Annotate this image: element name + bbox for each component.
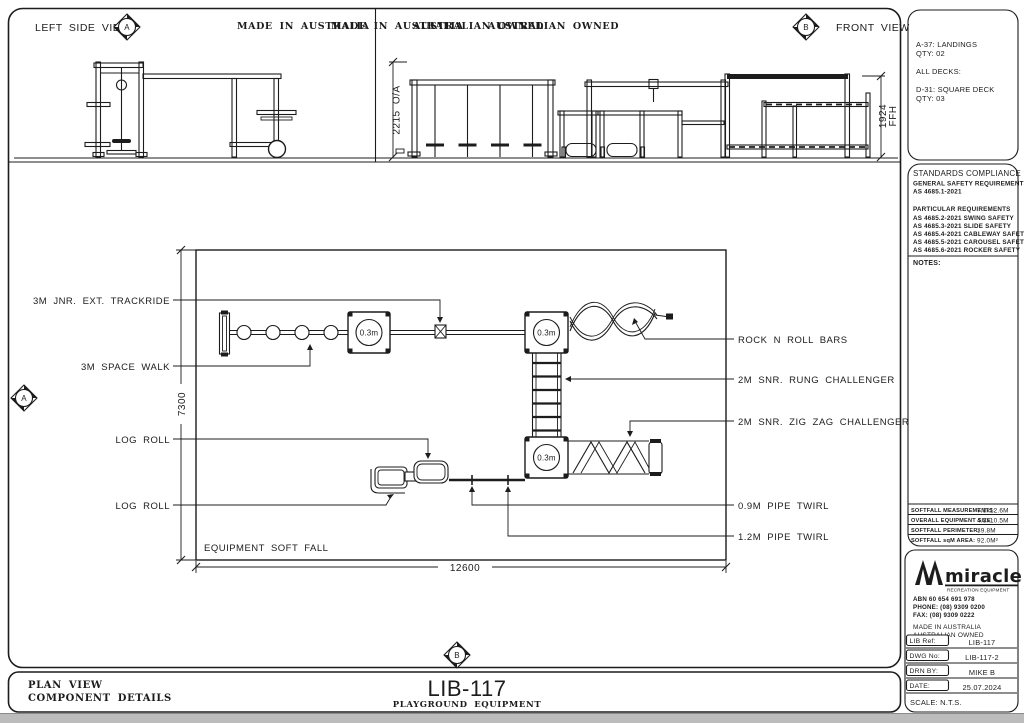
svg-text:FAX: (08) 9309 0222: FAX: (08) 9309 0222 [913, 612, 975, 619]
label-log-roll-1: LOG ROLL [115, 435, 170, 446]
svg-text:AS 4685.5-2021 CAROUSEL SAFETY: AS 4685.5-2021 CAROUSEL SAFETY [913, 239, 1024, 246]
svg-text:A: A [21, 394, 27, 403]
footer-details-title: COMPONENT DETAILS [28, 693, 172, 704]
svg-text:SOFTFALL sqM AREA:: SOFTFALL sqM AREA: [911, 538, 975, 544]
plan-view: 7300 12600 [33, 246, 909, 574]
label-trackride: 3M JNR. EXT. TRACKRIDE [33, 296, 170, 307]
deck-3: 0.3m [525, 437, 568, 478]
deck-height-label: 0.3m [537, 454, 556, 463]
cad-canvas: LEFT SIDE VIEW FRONT VIEW MADE IN AUSTRA… [0, 0, 1024, 723]
dwg-no-value: LIB-117-2 [965, 653, 999, 662]
drn-by-value: MIKE B [969, 668, 995, 677]
svg-text:4.5x10.5M: 4.5x10.5M [977, 518, 1009, 525]
svg-text:B: B [803, 23, 809, 32]
label-zig-zag-challenger: 2M SNR. ZIG ZAG CHALLENGER [738, 417, 909, 428]
svg-text:D-31: SQUARE DECK: D-31: SQUARE DECK [916, 85, 994, 94]
svg-text:QTY: 03: QTY: 03 [916, 94, 945, 103]
ffh-dim-unit: FFH [888, 106, 899, 127]
svg-text:ABN 60 654 691 978: ABN 60 654 691 978 [913, 596, 975, 603]
section-marker-a-top: A [114, 14, 140, 40]
svg-text:DRN BY:: DRN BY: [910, 668, 939, 675]
svg-text:LIB Ref:: LIB Ref: [910, 638, 936, 645]
svg-text:AS 4685.2-2021 SWING SAFETY: AS 4685.2-2021 SWING SAFETY [913, 215, 1015, 222]
equipment-soft-fall-label: EQUIPMENT SOFT FALL [204, 543, 328, 554]
label-pipe-twirl-09: 0.9M PIPE TWIRL [738, 501, 829, 512]
svg-text:STANDARDS COMPLIANCE: STANDARDS COMPLIANCE [913, 169, 1021, 178]
svg-text:39.8M: 39.8M [977, 528, 996, 535]
deck-2: 0.3m [525, 312, 568, 353]
logo-wordmark: miracle [945, 566, 1022, 587]
notes-label: NOTES: [913, 260, 941, 267]
svg-text:PHONE: (08) 9309 0200: PHONE: (08) 9309 0200 [913, 604, 985, 611]
svg-text:ALL DECKS:: ALL DECKS: [916, 67, 961, 76]
svg-text:AS 4685.6-2021 ROCKER SAFETY: AS 4685.6-2021 ROCKER SAFETY [913, 247, 1021, 254]
svg-text:AS 4685.4-2021 CABLEWAY SAFETY: AS 4685.4-2021 CABLEWAY SAFETY [913, 231, 1024, 238]
plan-width-dimension: 12600 [192, 561, 730, 574]
svg-text:PARTICULAR REQUIREMENTS: PARTICULAR REQUIREMENTS [913, 206, 1011, 213]
footer-strip: PLAN VIEW COMPONENT DETAILS LIB-117 PLAY… [9, 672, 901, 712]
section-marker-a-left: A [11, 385, 37, 411]
drawing-code: LIB-117 [428, 676, 507, 701]
label-rung-challenger: 2M SNR. RUNG CHALLENGER [738, 375, 895, 386]
svg-text:A: A [124, 23, 130, 32]
date-value: 25.07.2024 [963, 683, 1002, 692]
australian-owned-stamp: AUSTRALIAN OWNED [487, 21, 619, 32]
scale-value: SCALE: N.T.S. [910, 698, 962, 707]
deck-1: 0.3m [348, 312, 390, 353]
svg-text:MADE IN AUSTRALIA: MADE IN AUSTRALIA [913, 624, 982, 631]
svg-text:DWG No:: DWG No: [910, 653, 940, 660]
label-log-roll-2: LOG ROLL [115, 501, 170, 512]
svg-text:7.3x12.6M: 7.3x12.6M [977, 508, 1009, 515]
lib-ref-value: LIB-117 [969, 638, 996, 647]
section-marker-b-top: B [793, 14, 819, 40]
standards-box: STANDARDS COMPLIANCE GENERAL SAFETY REQU… [908, 164, 1024, 546]
title-block: LIB Ref: LIB-117 DWG No: LIB-117-2 DRN B… [906, 635, 1017, 707]
svg-text:92.0M²: 92.0M² [977, 538, 998, 545]
label-pipe-twirl-12: 1.2M PIPE TWIRL [738, 532, 829, 543]
taskbar[interactable] [0, 714, 1024, 723]
svg-text:SOFTFALL PERIMETER:: SOFTFALL PERIMETER: [911, 528, 980, 534]
footer-view-title: PLAN VIEW [28, 680, 103, 691]
svg-text:7300: 7300 [177, 392, 188, 416]
svg-text:B: B [454, 651, 460, 660]
label-space-walk: 3M SPACE WALK [81, 362, 170, 373]
plan-depth-dimension: 7300 [176, 246, 196, 564]
svg-text:AS 4685.1-2021: AS 4685.1-2021 [913, 189, 962, 196]
space-walk-poles [426, 85, 542, 157]
svg-text:DATE:: DATE: [910, 683, 931, 690]
logo-tagline: RECREATION EQUIPMENT [947, 588, 1009, 593]
section-marker-b-bottom: B [444, 642, 470, 668]
front-view-drawing: 2215 O/A [389, 58, 899, 161]
svg-text:12600: 12600 [450, 563, 480, 574]
deck-height-label: 0.3m [537, 329, 556, 338]
svg-text:AS 4685.3-2021 SLIDE SAFETY: AS 4685.3-2021 SLIDE SAFETY [913, 223, 1012, 230]
label-rock-n-roll-bars: ROCK N ROLL BARS [738, 335, 848, 346]
deck-height-label: 0.3m [360, 329, 379, 338]
front-view-label: FRONT VIEW [836, 22, 910, 34]
svg-text:A-37: LANDINGS: A-37: LANDINGS [916, 40, 977, 49]
svg-text:QTY: 02: QTY: 02 [916, 49, 945, 58]
components-box: A-37: LANDINGS QTY: 02 ALL DECKS: D-31: … [908, 10, 1018, 160]
drawing-subtitle: PLAYGROUND EQUIPMENT [393, 700, 542, 710]
svg-text:GENERAL SAFETY REQUIREMENTS: GENERAL SAFETY REQUIREMENTS [913, 181, 1024, 188]
miracle-logo: miracle RECREATION EQUIPMENT [915, 560, 1022, 593]
left-side-view-drawing [85, 62, 296, 158]
drawing-sheet: LEFT SIDE VIEW FRONT VIEW MADE IN AUSTRA… [0, 0, 1024, 723]
overall-height-dim: 2215 O/A [392, 85, 403, 134]
softfall-table: SOFTFALL MEASUREMENTS: 7.3x12.6M OVERALL… [908, 504, 1018, 545]
